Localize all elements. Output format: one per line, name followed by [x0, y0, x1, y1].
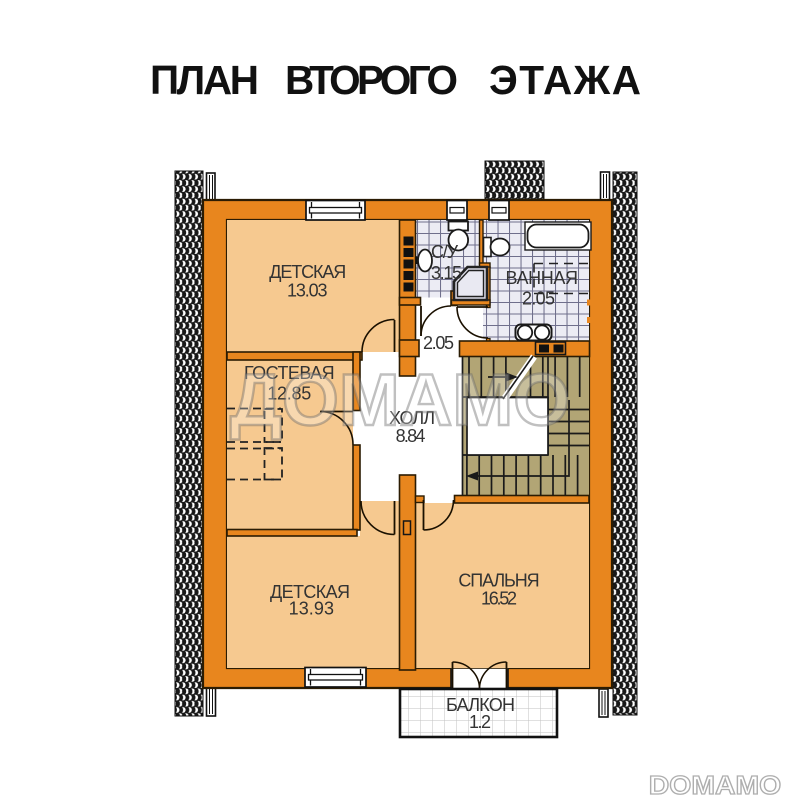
svg-text:2.05: 2.05	[423, 333, 454, 353]
svg-text:13.93: 13.93	[289, 599, 334, 619]
svg-text:DOMAMO: DOMAMO	[649, 770, 782, 800]
svg-text:ПЛАН: ПЛАН	[150, 57, 259, 103]
svg-text:1.2: 1.2	[469, 712, 491, 732]
svg-text:3.15: 3.15	[431, 263, 462, 283]
svg-text:ДОМАМО: ДОМАМО	[230, 360, 570, 441]
svg-text:ЭТАЖА: ЭТАЖА	[489, 57, 641, 103]
svg-text:ВТОРОГО: ВТОРОГО	[285, 57, 458, 103]
svg-text:С/У: С/У	[431, 242, 459, 262]
svg-text:ВАННАЯ: ВАННАЯ	[505, 268, 578, 288]
svg-text:16.52: 16.52	[481, 589, 517, 609]
svg-text:2.05: 2.05	[522, 289, 555, 309]
svg-text:ДЕТСКАЯ: ДЕТСКАЯ	[269, 262, 346, 282]
svg-text:13.03: 13.03	[287, 281, 328, 301]
